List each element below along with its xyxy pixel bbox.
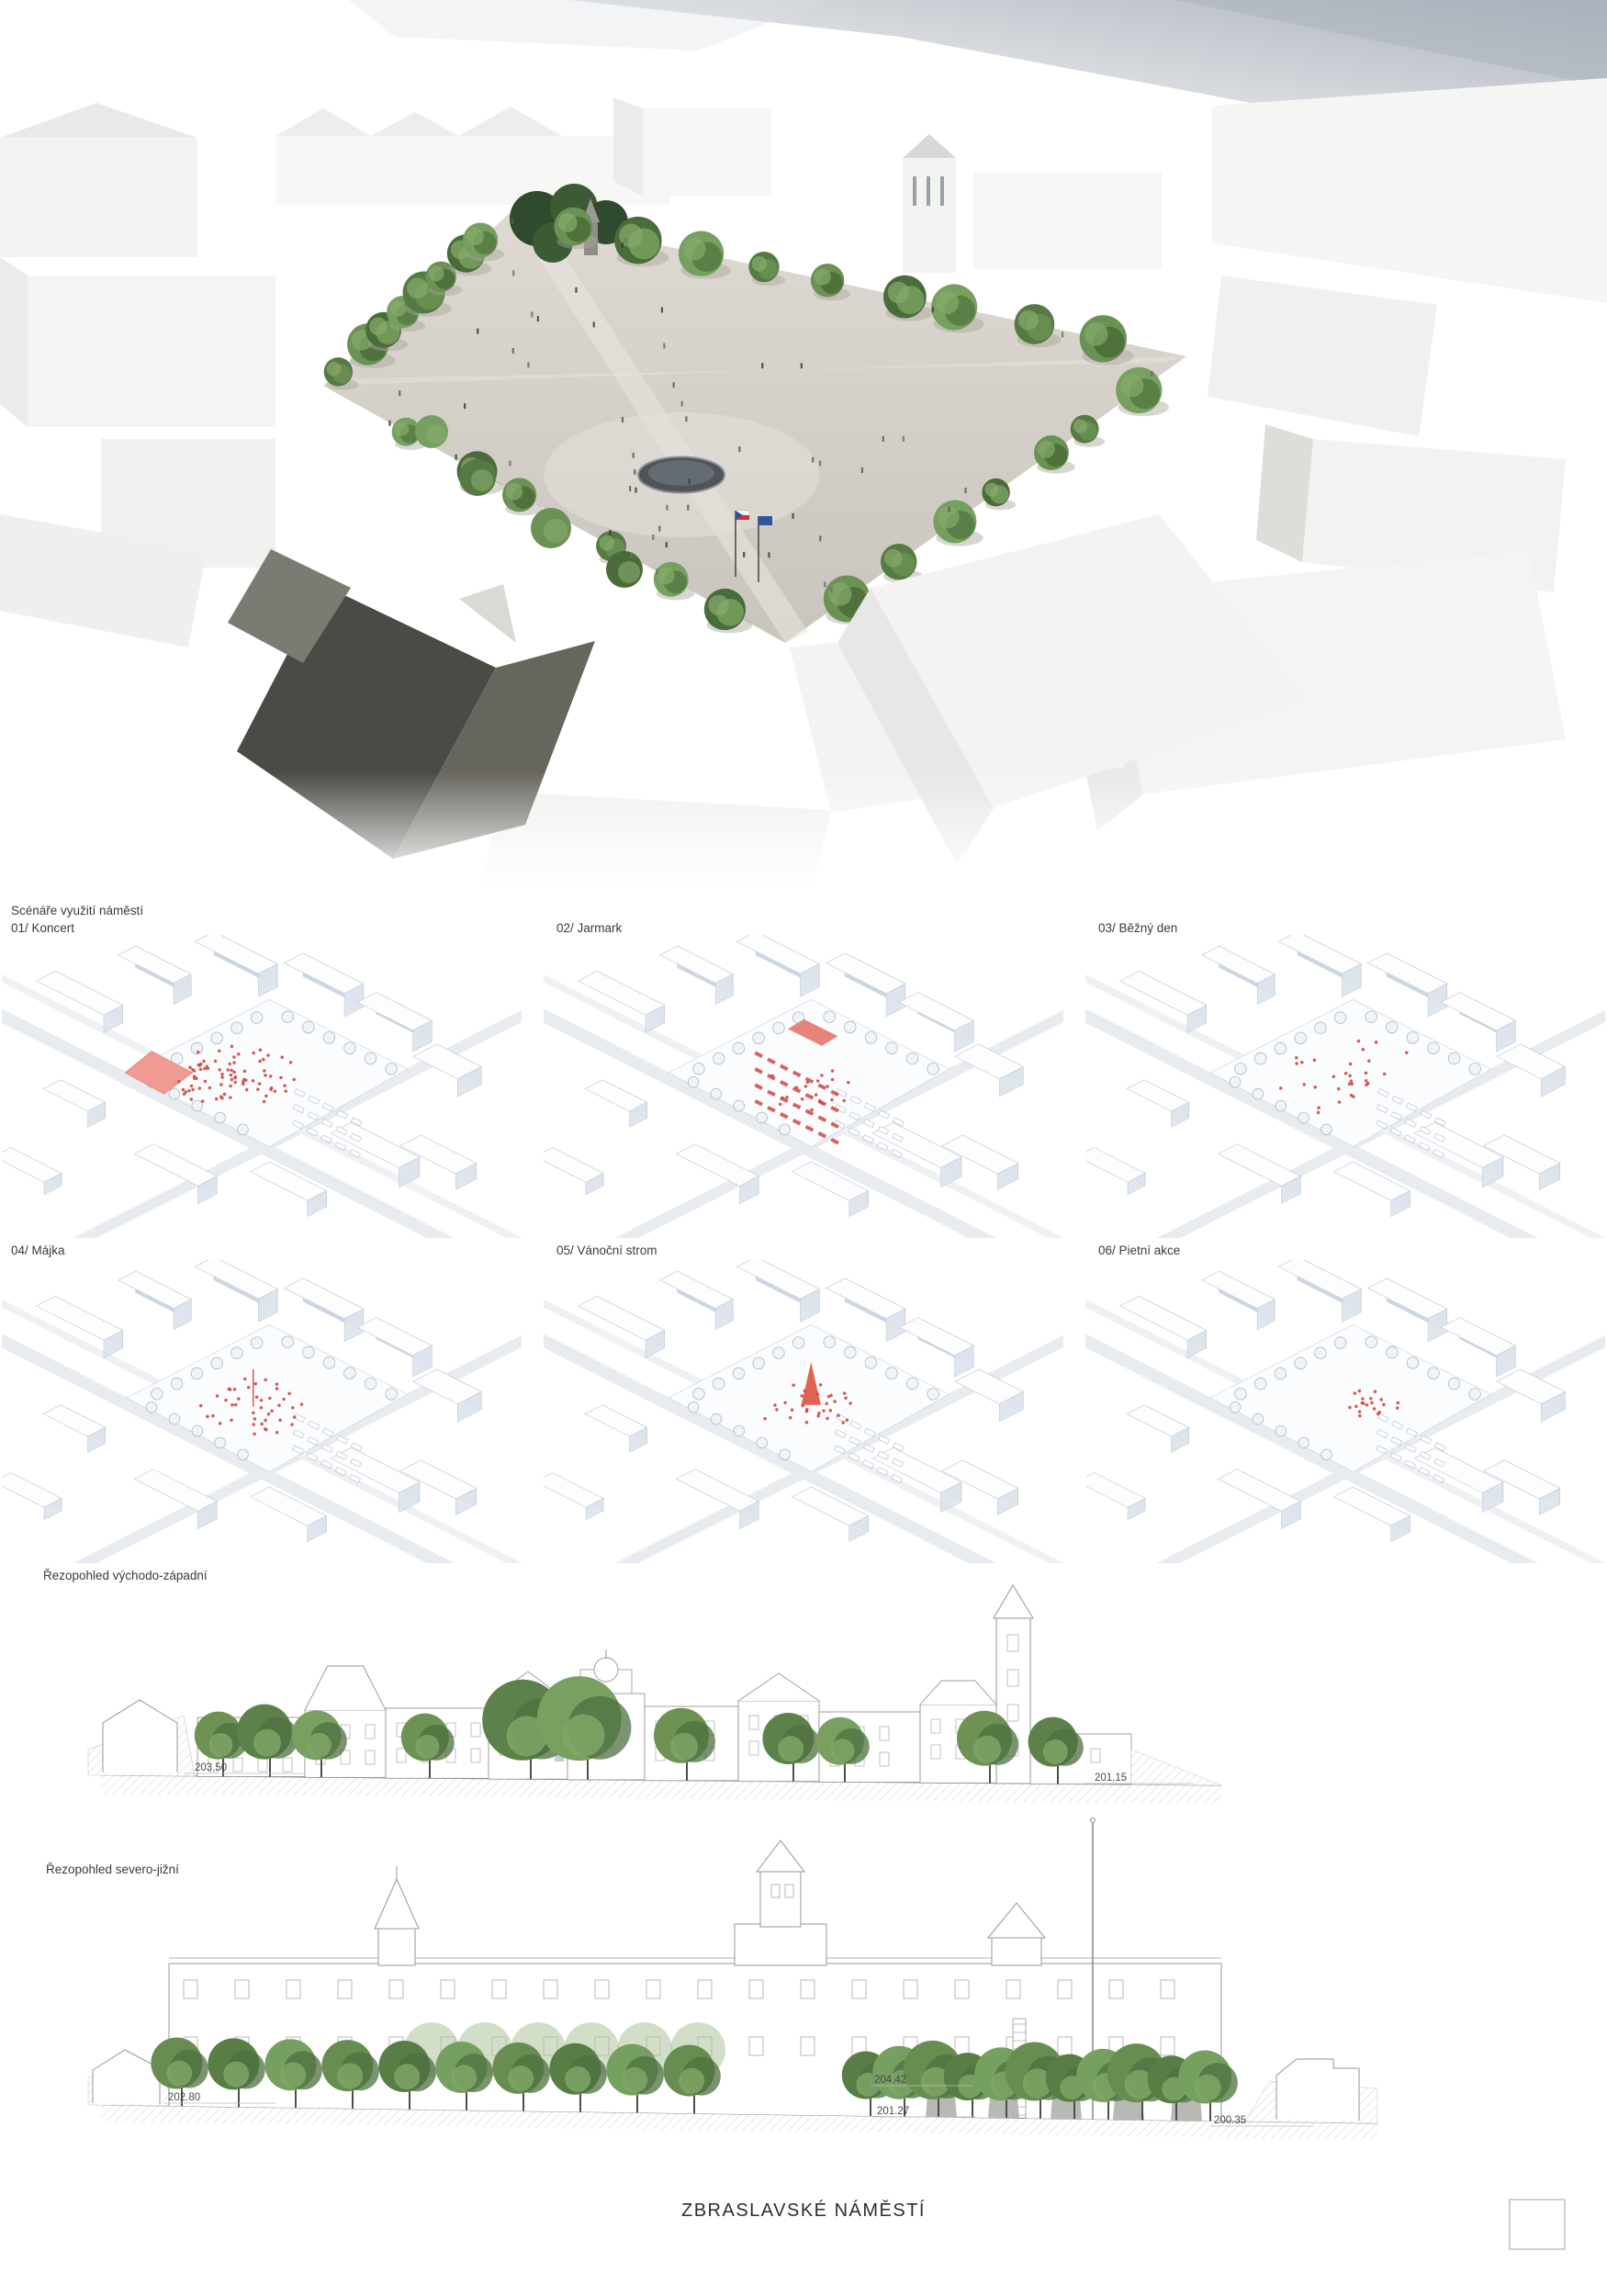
scenario-tile-vanocni-strom xyxy=(544,1260,1063,1563)
level-annotation: 201.15 xyxy=(1095,1773,1127,1784)
scenario-label-pietni-akce: 06/ Pietní akce xyxy=(1098,1242,1180,1259)
level-annotation: 201.27 xyxy=(877,2106,909,2117)
scenario-tile-bezny-den xyxy=(1085,935,1605,1238)
section-north-south-drawing: 202.80 204.42 201.27 200.35 xyxy=(0,1800,1607,2177)
scenario-tile-jarmark xyxy=(544,935,1063,1238)
axon-drawing xyxy=(544,935,1063,1238)
scenario-tile-pietni-akce xyxy=(1085,1260,1605,1563)
axon-drawing xyxy=(1085,935,1605,1238)
axon-drawing xyxy=(1085,1260,1605,1563)
scenario-label-majka: 04/ Májka xyxy=(11,1242,65,1259)
scenarios-heading: Scénáře využití náměstí xyxy=(11,902,143,919)
corner-logo-box xyxy=(1509,2199,1566,2250)
section-east-west-drawing: 203.50 201.15 xyxy=(0,1561,1607,1809)
section-drawing-lines xyxy=(88,1818,1377,2141)
scenario-tile-koncert xyxy=(2,935,522,1238)
axon-drawing xyxy=(2,935,522,1238)
axon-drawing xyxy=(2,1260,522,1563)
hero-fountain xyxy=(638,457,725,493)
scenario-tile-majka xyxy=(2,1260,522,1563)
level-annotation: 204.42 xyxy=(874,2075,906,2086)
level-annotation: 203.50 xyxy=(195,1762,227,1773)
section-drawing-lines xyxy=(88,1585,1221,1804)
scenarios-heading-block: Scénáře využití náměstí 01/ Koncert xyxy=(11,902,143,937)
hero-aerial-svg xyxy=(0,0,1607,886)
axon-drawing xyxy=(544,1260,1063,1563)
hero-aerial-render xyxy=(0,0,1607,886)
level-annotation: 202.80 xyxy=(168,2092,200,2103)
board-title: ZBRASLAVSKÉ NÁMĚSTÍ xyxy=(0,2200,1607,2222)
hero-bottom-fade xyxy=(0,771,1607,886)
level-annotation: 200.35 xyxy=(1214,2115,1246,2126)
scenario-label-vanocni-strom: 05/ Vánoční strom xyxy=(556,1242,657,1259)
